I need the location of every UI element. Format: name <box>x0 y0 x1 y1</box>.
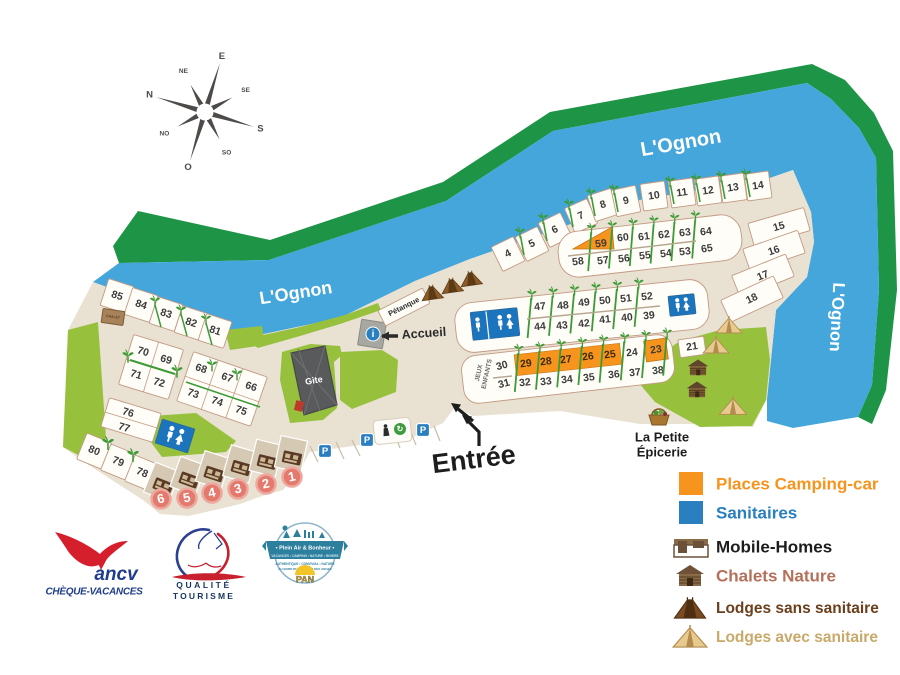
svg-text:P: P <box>364 435 371 446</box>
svg-text:Chalets Nature: Chalets Nature <box>716 566 836 585</box>
svg-text:25: 25 <box>603 348 616 361</box>
svg-text:NE: NE <box>179 68 189 75</box>
svg-text:55: 55 <box>638 249 651 262</box>
svg-text:Sanitaires: Sanitaires <box>716 503 797 522</box>
svg-text:P: P <box>420 425 427 436</box>
svg-text:N: N <box>146 90 153 101</box>
svg-text:i: i <box>372 329 375 340</box>
svg-text:• Plein Air & Bonheur •: • Plein Air & Bonheur • <box>276 545 335 551</box>
svg-text:L'Ognon: L'Ognon <box>826 282 849 352</box>
svg-text:51: 51 <box>620 292 633 305</box>
svg-text:NO: NO <box>160 130 170 137</box>
svg-text:12: 12 <box>701 184 714 198</box>
svg-text:VACANCES • CAMPING • NATURE •: VACANCES • CAMPING • NATURE • RIVIERE <box>271 554 338 558</box>
svg-text:65: 65 <box>700 242 714 256</box>
svg-text:56: 56 <box>617 252 630 265</box>
svg-text:14: 14 <box>751 179 764 193</box>
svg-text:63: 63 <box>678 226 691 239</box>
svg-text:La Petite: La Petite <box>635 429 689 444</box>
svg-text:21: 21 <box>685 340 698 354</box>
svg-text:CHÈQUE-VACANCES: CHÈQUE-VACANCES <box>46 585 144 598</box>
svg-text:P: P <box>322 446 329 457</box>
svg-text:TOURISME: TOURISME <box>173 591 235 601</box>
svg-text:Mobile-Homes: Mobile-Homes <box>716 537 832 556</box>
svg-text:↻: ↻ <box>397 425 404 434</box>
svg-text:ancv: ancv <box>94 564 139 585</box>
svg-text:29: 29 <box>519 357 532 370</box>
svg-text:44: 44 <box>534 320 547 333</box>
svg-text:37: 37 <box>628 366 641 379</box>
svg-text:50: 50 <box>599 294 612 307</box>
svg-text:26: 26 <box>581 350 594 363</box>
svg-text:QUALITÉ: QUALITÉ <box>176 580 232 590</box>
svg-text:57: 57 <box>596 254 609 267</box>
svg-text:E: E <box>219 51 225 62</box>
svg-text:41: 41 <box>599 313 612 326</box>
svg-text:48: 48 <box>557 299 570 312</box>
svg-text:32: 32 <box>518 376 531 389</box>
svg-text:33: 33 <box>539 375 552 388</box>
svg-text:64: 64 <box>699 225 712 238</box>
svg-text:SE: SE <box>241 87 250 94</box>
svg-text:36: 36 <box>607 368 620 381</box>
svg-text:27: 27 <box>559 353 572 366</box>
svg-text:58: 58 <box>571 255 584 268</box>
svg-text:PAN: PAN <box>296 574 314 584</box>
svg-text:39: 39 <box>643 309 656 322</box>
svg-text:11: 11 <box>676 186 689 199</box>
svg-text:40: 40 <box>621 311 634 324</box>
svg-text:54: 54 <box>659 247 672 260</box>
svg-text:34: 34 <box>560 373 573 386</box>
svg-text:47: 47 <box>534 300 547 313</box>
svg-text:35: 35 <box>582 371 595 384</box>
svg-text:23: 23 <box>649 343 662 357</box>
svg-text:SO: SO <box>222 149 231 156</box>
svg-text:49: 49 <box>578 296 591 309</box>
svg-text:10: 10 <box>647 189 660 203</box>
svg-text:59: 59 <box>594 237 607 250</box>
svg-text:60: 60 <box>616 231 629 244</box>
svg-text:S: S <box>257 123 263 134</box>
svg-text:Lodges sans sanitaire: Lodges sans sanitaire <box>716 600 879 617</box>
svg-text:42: 42 <box>578 317 591 330</box>
svg-text:28: 28 <box>539 355 552 368</box>
svg-text:43: 43 <box>556 319 569 332</box>
svg-text:24: 24 <box>625 346 638 359</box>
svg-text:O: O <box>184 162 191 173</box>
svg-text:52: 52 <box>641 290 654 303</box>
svg-text:13: 13 <box>726 181 739 195</box>
svg-text:Places Camping-car: Places Camping-car <box>716 474 879 493</box>
svg-text:61: 61 <box>637 230 650 243</box>
svg-text:Épicerie: Épicerie <box>637 444 688 459</box>
svg-text:Lodges avec sanitaire: Lodges avec sanitaire <box>716 629 878 646</box>
svg-text:62: 62 <box>657 228 670 241</box>
svg-text:53: 53 <box>678 245 691 258</box>
